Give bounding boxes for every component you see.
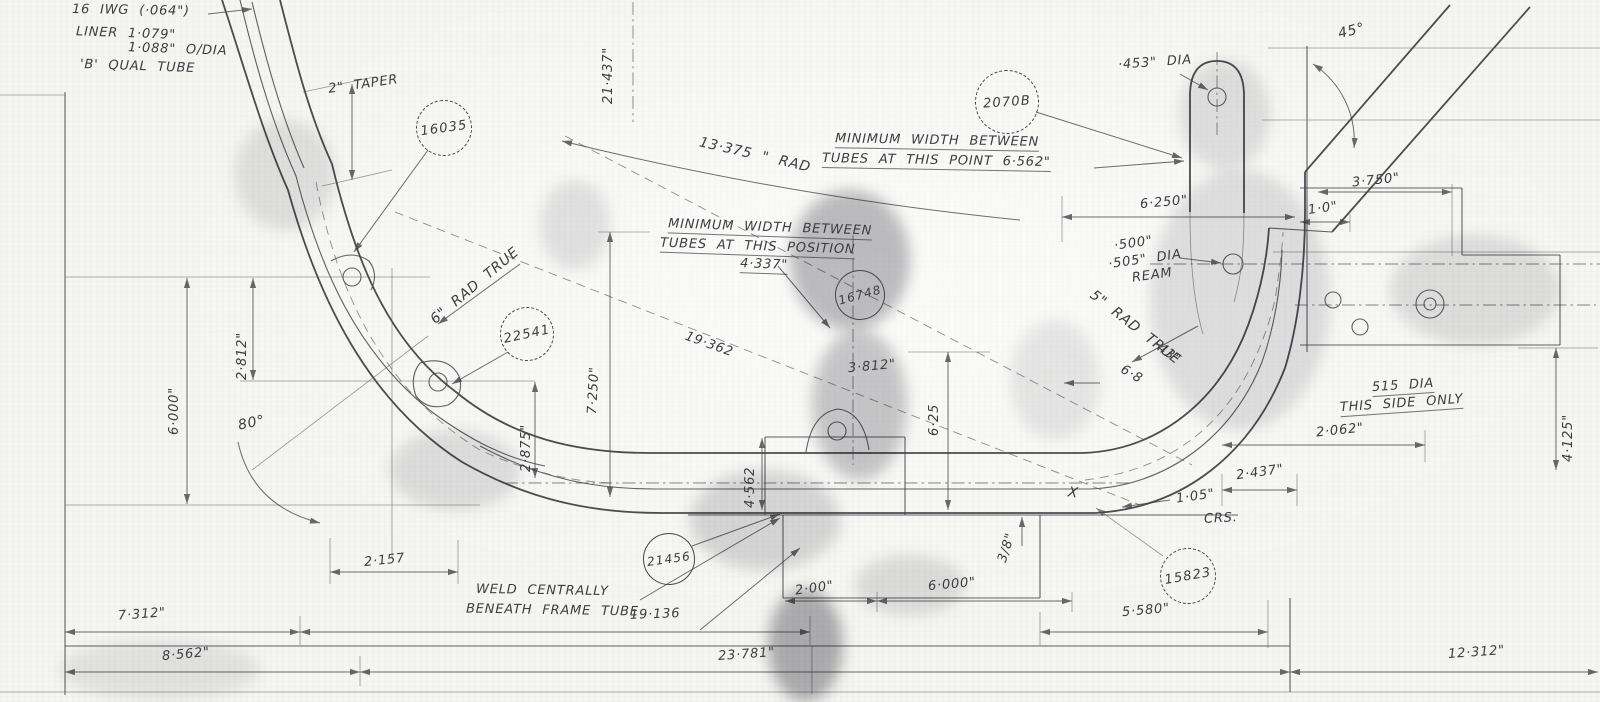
dim-2-812: 2·812" [236,332,249,380]
note-min-width-pos-value: 4·337" [740,257,789,275]
note-liner-bottom: 1·088" O/DIA [128,41,228,57]
dim-19-136: 19·136 [630,607,681,622]
dim-5-580: 5·580" [1122,602,1171,619]
dim-23-781: 23·781" [718,646,776,663]
dim-4-562: 4·562 [744,467,757,508]
note-crs: CRS. [1204,511,1238,526]
dim-3-812: 3·812" [848,358,897,375]
dim-12-312: 12·312" [1448,644,1506,661]
bottom-plate [688,409,1238,598]
dim-8-562: 8·562" [162,646,211,663]
left-gussets [331,255,461,407]
dim-4-125: 4·125" [1562,414,1575,462]
note-weld-line1: WELD CENTRALLY [476,583,609,598]
balloon-leaders [354,112,1182,630]
dim-6-250: 6·250" [1140,194,1189,211]
dim-6-25: 6·25 [928,404,941,436]
dim-1-0: 1·0" [1307,200,1338,217]
dim-7-250: 7·250" [586,366,601,415]
note-liner-top: LINER 1·079" [76,25,176,41]
dim-x-mark: X [1067,485,1079,500]
note-tube-quality: 'B' QUAL TUBE [80,58,196,75]
blueprint-sheet: 16 IWG (·064") LINER 1·079" 1·088" O/DIA… [0,0,1600,702]
note-tube-gauge: 16 IWG (·064") [72,3,190,18]
dim-6-000-bottom: 6·000" [928,576,977,593]
dim-7-312: 7·312" [118,606,167,622]
dim-6-000-left: 6·000" [168,387,181,435]
head-tube [1190,52,1244,334]
note-weld-line2: BENEATH FRAME TUBE [466,602,639,618]
dim-2-875: 2·875" [520,424,533,472]
dim-21-437: 21·437" [602,47,615,104]
